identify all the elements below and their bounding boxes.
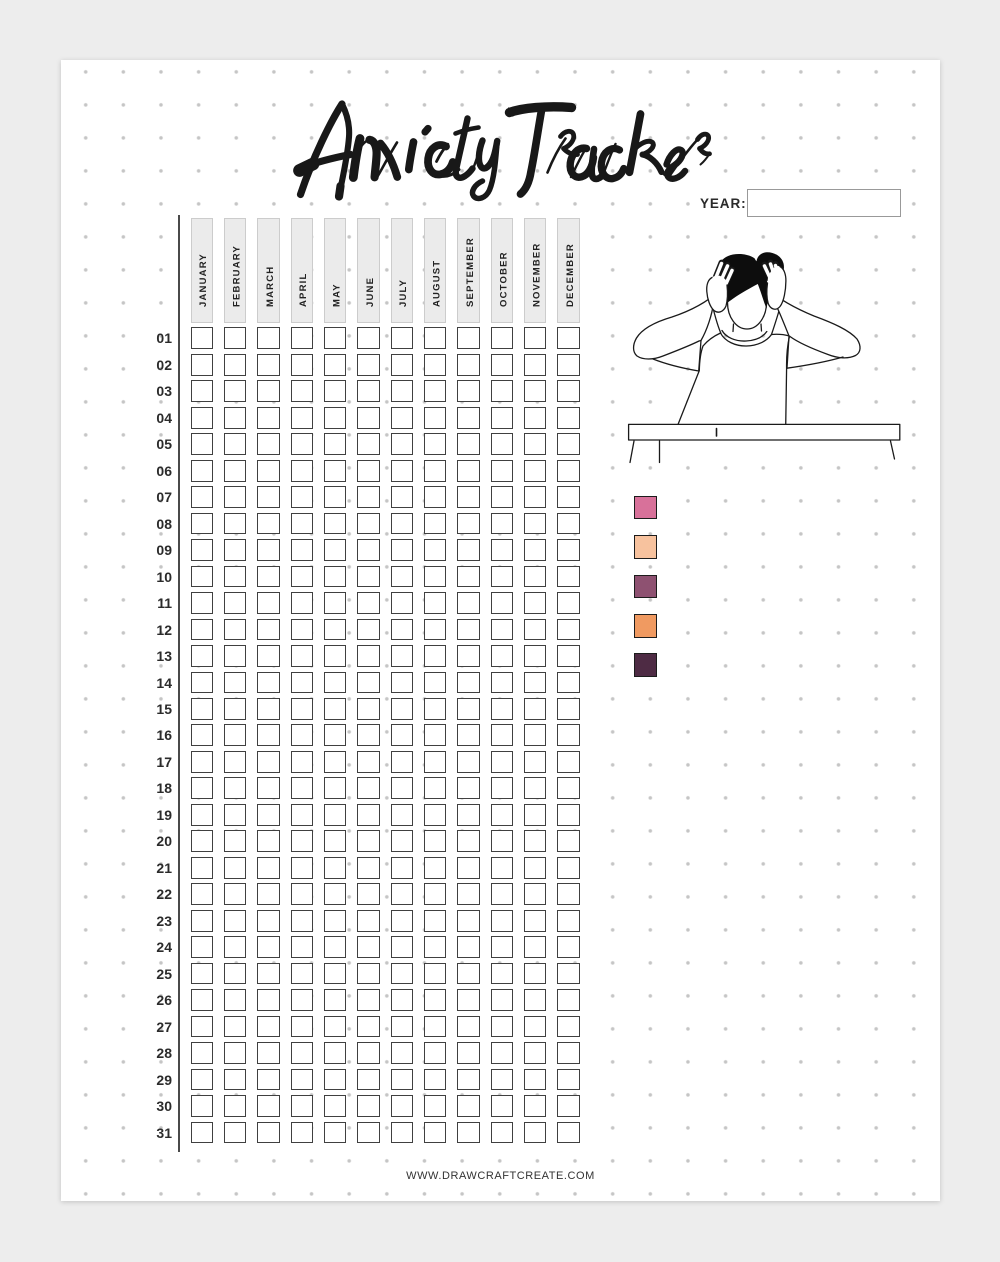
- svg-text:NOVEMBER: NOVEMBER: [532, 243, 543, 307]
- svg-text:JULY: JULY: [398, 279, 409, 307]
- svg-text:APRIL: APRIL: [298, 273, 309, 308]
- svg-text:MARCH: MARCH: [265, 266, 276, 307]
- svg-text:DECEMBER: DECEMBER: [565, 243, 576, 307]
- svg-text:FEBRUARY: FEBRUARY: [231, 245, 242, 307]
- svg-text:AUGUST: AUGUST: [432, 260, 443, 307]
- svg-text:MAY: MAY: [332, 283, 343, 307]
- svg-text:SEPTEMBER: SEPTEMBER: [465, 237, 476, 307]
- svg-text:JUNE: JUNE: [365, 277, 376, 307]
- svg-text:JANUARY: JANUARY: [198, 253, 209, 307]
- svg-text:OCTOBER: OCTOBER: [498, 251, 509, 307]
